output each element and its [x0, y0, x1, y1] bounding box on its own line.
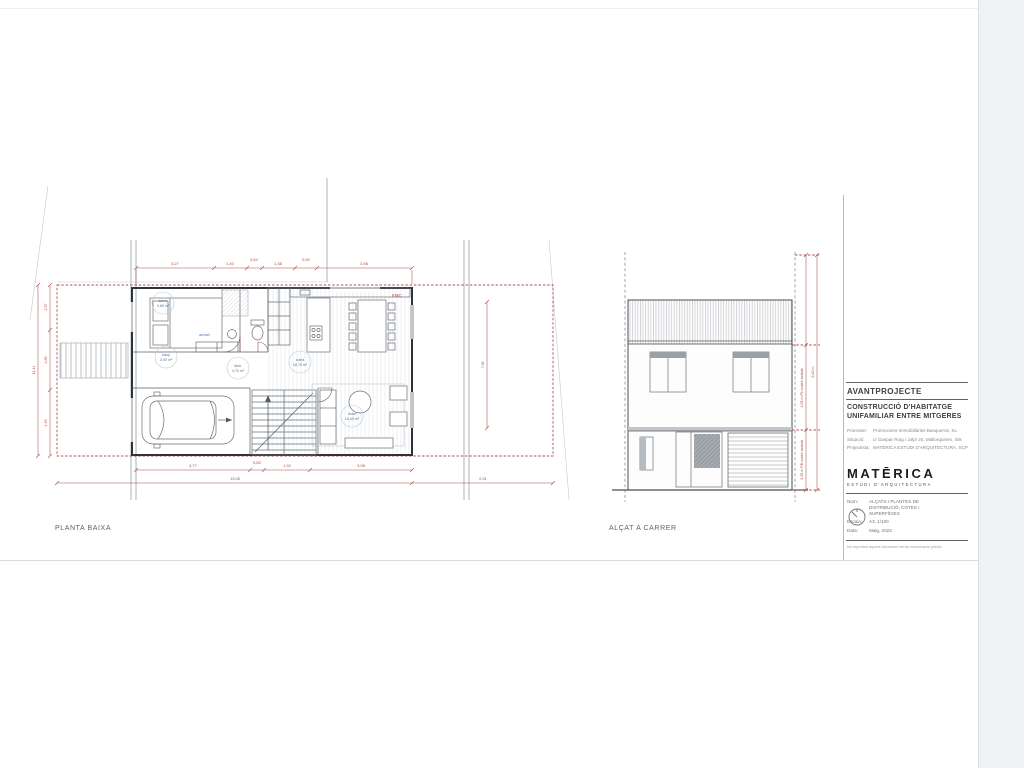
facade [628, 300, 792, 490]
svg-text:4,70 m²: 4,70 m² [232, 369, 245, 373]
meta-value: MATÈRICA ESTUDI D'ARQUITECTURA, SCP [873, 444, 968, 453]
meta-value: c/ Gaspar Roig i Jalpí 20, Mallorquines,… [873, 436, 968, 445]
svg-text:estar: estar [348, 412, 357, 416]
studio-logo: MATĒRICA ESTUDI D'ARQUITECTURA [847, 466, 968, 487]
disclaimer-text: No reproduir aquest document sense autor… [847, 545, 968, 549]
floor-finish-hatch [268, 289, 411, 454]
svg-text:16,40 m²: 16,40 m² [345, 417, 360, 421]
kitchen-island [307, 298, 330, 352]
svg-text:0,60: 0,60 [253, 460, 262, 465]
garage-car [142, 392, 234, 448]
project-title-line2: UNIFAMILIAR ENTRE MITGERES [847, 413, 968, 422]
sheet-info: Nom: ALÇATS I PLANTES DE DISTRIBUCIÓ, CO… [847, 499, 968, 534]
info-value: ALÇATS I PLANTES DE DISTRIBUCIÓ, COTES I… [869, 499, 939, 518]
svg-text:distr.: distr. [234, 364, 242, 368]
info-label: Data: [847, 528, 869, 534]
dining-table [349, 300, 395, 352]
titleblock-rule [846, 540, 968, 541]
meta-label: Projectista: [847, 444, 873, 453]
svg-text:0,92: 0,92 [302, 257, 311, 262]
wardrobe-label: armari [199, 333, 210, 337]
info-row-data: Data: Maig, 2023 [847, 528, 968, 534]
svg-text:11,14: 11,14 [32, 366, 36, 375]
svg-text:bany: bany [162, 353, 170, 357]
svg-text:13,05: 13,05 [230, 476, 241, 481]
meta-label: Promotor: [847, 427, 873, 436]
elevation-dims: 3,05 m P1 sostre acabat 3,35 m PB sostre… [792, 253, 820, 492]
svg-text:3,98: 3,98 [357, 463, 366, 468]
svg-text:6,40 m: 6,40 m [811, 367, 815, 378]
titleblock-rule [846, 382, 968, 383]
svg-text:2,31: 2,31 [479, 476, 488, 481]
svg-text:1,92: 1,92 [283, 463, 292, 468]
project-meta: Promotor: Promocions Immobiliàries Basqu… [847, 427, 968, 453]
svg-text:3,90 m²: 3,90 m² [160, 358, 173, 362]
title-block: AVANTPROJECTE CONSTRUCCIÓ D'HABITATGE UN… [846, 382, 968, 549]
svg-text:dorm.: dorm. [158, 299, 167, 303]
titleblock-rule [846, 399, 968, 400]
floor-plan: armari [30, 178, 569, 500]
plan-dims-right: 7,06 [481, 300, 489, 430]
street-elevation: 3,05 m P1 sostre acabat 3,35 m PB sostre… [612, 252, 820, 502]
svg-text:2,85: 2,85 [44, 357, 48, 364]
meta-value: Promocions Immobiliàries Basqueros, SL [873, 427, 968, 436]
garage-door [728, 433, 788, 487]
studio-logo-tagline: ESTUDI D'ARQUITECTURA [847, 482, 968, 487]
plan-title: PLANTA BAIXA [55, 525, 111, 532]
svg-text:2,97: 2,97 [44, 304, 48, 311]
plan-dims-bottom: 4,77 0,60 1,92 3,98 13,05 2,31 [55, 460, 555, 485]
plan-dims-top: 3,27 1,40 0,64 1,38 0,92 3,98 [134, 257, 414, 284]
project-title: CONSTRUCCIÓ D'HABITATGE UNIFAMILIAR ENTR… [847, 404, 968, 421]
studio-logo-name: MATĒRICA [847, 466, 968, 481]
meta-row-situacio: Situació: c/ Gaspar Roig i Jalpí 20, Mal… [847, 436, 968, 445]
svg-text:9,85 m²: 9,85 m² [157, 304, 170, 308]
svg-text:3,35 m PB sostre acabat: 3,35 m PB sostre acabat [800, 440, 804, 479]
svg-text:3,27: 3,27 [171, 261, 180, 266]
svg-text:3,05 m P1 sostre acabat: 3,05 m P1 sostre acabat [800, 369, 804, 408]
svg-text:0,64: 0,64 [250, 257, 259, 262]
plan-dims-left: 2,97 2,85 4,45 11,14 [32, 283, 52, 458]
info-value: A3, 1/100 [869, 519, 939, 525]
titleblock-rule [846, 493, 968, 494]
svg-text:1,40: 1,40 [226, 261, 235, 266]
slab-band [628, 427, 792, 431]
facade-cladding-band [628, 300, 792, 344]
bathroom-fixtures [222, 290, 264, 340]
meta-row-promotor: Promotor: Promocions Immobiliàries Basqu… [847, 427, 968, 436]
yard-steps [60, 343, 128, 378]
info-value: Maig, 2023 [869, 528, 939, 534]
emc-label: EMC [392, 293, 402, 298]
project-title-line1: CONSTRUCCIÓ D'HABITATGE [847, 404, 968, 413]
svg-text:4,77: 4,77 [189, 463, 198, 468]
phase-title: AVANTPROJECTE [847, 387, 968, 396]
svg-text:1,38: 1,38 [274, 261, 283, 266]
svg-text:3,98: 3,98 [360, 261, 369, 266]
svg-text:7,06: 7,06 [481, 362, 485, 369]
meta-label: Situació: [847, 436, 873, 445]
elevation-title: ALÇAT A CARRER [609, 525, 677, 532]
meta-row-projectista: Projectista: MATÈRICA ESTUDI D'ARQUITECT… [847, 444, 968, 453]
north-arrow-icon [847, 507, 867, 527]
drawing-sheet: armari [0, 0, 1024, 768]
svg-text:4,45: 4,45 [44, 420, 48, 427]
svg-text:18,75 m²: 18,75 m² [293, 363, 308, 367]
svg-text:cuina: cuina [296, 358, 305, 362]
